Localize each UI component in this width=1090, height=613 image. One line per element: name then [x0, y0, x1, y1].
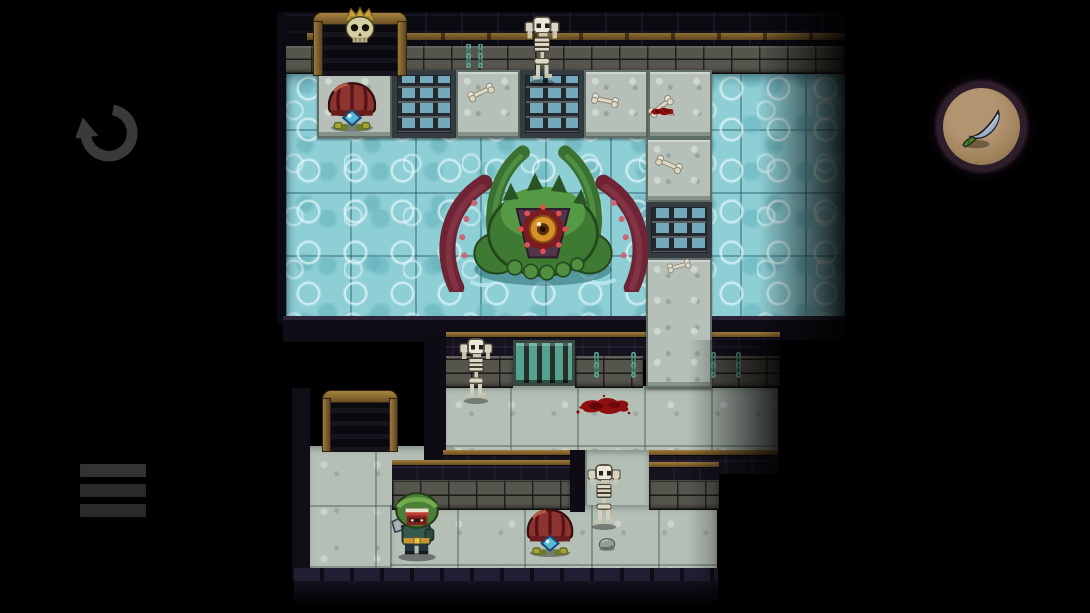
undo-button[interactable] — [76, 94, 138, 164]
bone-decor — [465, 80, 498, 104]
menu-button[interactable] — [80, 464, 146, 520]
mushroom-top[interactable] — [323, 80, 381, 132]
skeleton-top[interactable] — [524, 16, 560, 86]
bone-decor — [665, 257, 693, 275]
chain-decor — [629, 352, 638, 378]
chain-decor — [464, 44, 473, 68]
game-screen — [0, 0, 1090, 613]
chain-decor — [734, 352, 743, 378]
entity-layer — [0, 0, 1090, 613]
hamburger-menu-icon — [80, 464, 146, 477]
hamburger-bar — [80, 504, 146, 517]
hero[interactable] — [390, 490, 444, 562]
blood-large — [574, 392, 634, 418]
knife-icon — [957, 104, 1009, 152]
skeleton-middle[interactable] — [458, 338, 494, 404]
rock-decor — [596, 536, 618, 551]
boss-kraken[interactable] — [430, 128, 658, 292]
blood-small — [648, 104, 676, 118]
hamburger-bar — [80, 484, 146, 497]
chain-decor — [592, 352, 601, 378]
chain-decor — [476, 44, 485, 68]
chain-decor — [709, 352, 718, 378]
bone-decor — [589, 91, 621, 110]
undo-arrow-icon — [76, 94, 138, 164]
mushroom-bottom[interactable] — [522, 506, 578, 558]
skeleton-bottom[interactable] — [586, 464, 622, 530]
equipped-item-button[interactable] — [936, 81, 1027, 172]
